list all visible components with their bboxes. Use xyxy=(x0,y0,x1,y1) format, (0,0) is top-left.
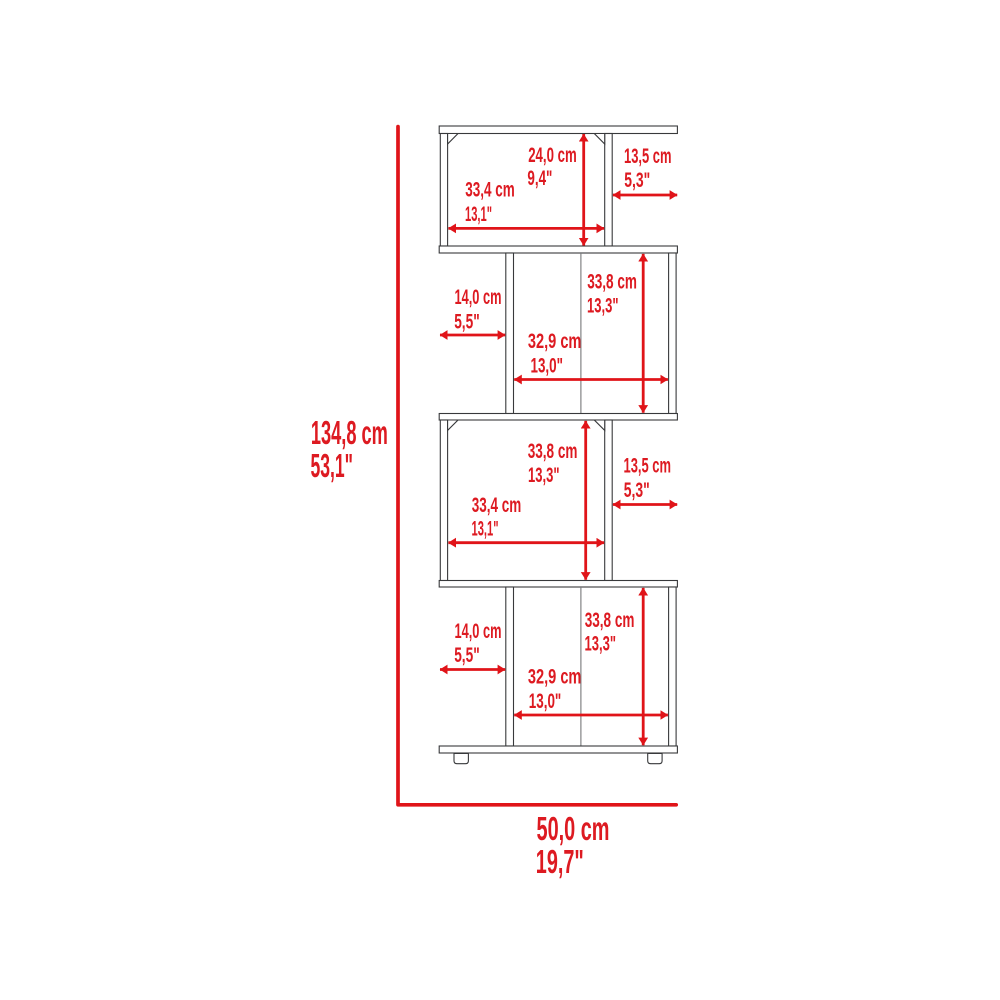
svg-text:13,5 cm: 13,5 cm xyxy=(624,145,672,168)
svg-text:13,1": 13,1" xyxy=(472,517,499,540)
svg-text:134,8 cm: 134,8 cm xyxy=(311,415,388,452)
svg-text:14,0 cm: 14,0 cm xyxy=(455,286,502,309)
svg-text:33,4 cm: 33,4 cm xyxy=(472,494,522,517)
svg-text:5,5": 5,5" xyxy=(454,644,480,667)
svg-text:13,3": 13,3" xyxy=(528,464,560,487)
svg-text:13,5 cm: 13,5 cm xyxy=(624,454,672,477)
svg-text:32,9 cm: 32,9 cm xyxy=(528,330,582,353)
svg-text:13,1": 13,1" xyxy=(465,203,492,226)
svg-text:9,4": 9,4" xyxy=(527,167,552,190)
svg-text:33,4 cm: 33,4 cm xyxy=(465,178,515,201)
svg-text:13,0": 13,0" xyxy=(531,354,564,377)
svg-text:33,8 cm: 33,8 cm xyxy=(587,270,637,293)
svg-text:19,7": 19,7" xyxy=(536,844,584,881)
svg-text:5,3": 5,3" xyxy=(624,479,650,502)
svg-text:33,8 cm: 33,8 cm xyxy=(528,440,578,463)
svg-text:5,5": 5,5" xyxy=(454,310,480,333)
svg-text:13,0": 13,0" xyxy=(529,690,562,713)
svg-text:13,3": 13,3" xyxy=(585,632,617,655)
svg-text:24,0 cm: 24,0 cm xyxy=(528,144,577,167)
svg-text:14,0 cm: 14,0 cm xyxy=(455,620,502,643)
svg-text:50,0 cm: 50,0 cm xyxy=(537,811,610,848)
svg-text:13,3": 13,3" xyxy=(587,294,619,317)
svg-text:53,1": 53,1" xyxy=(311,448,354,485)
svg-text:32,9 cm: 32,9 cm xyxy=(528,665,582,688)
svg-text:5,3": 5,3" xyxy=(624,169,650,192)
svg-text:33,8 cm: 33,8 cm xyxy=(585,609,635,632)
